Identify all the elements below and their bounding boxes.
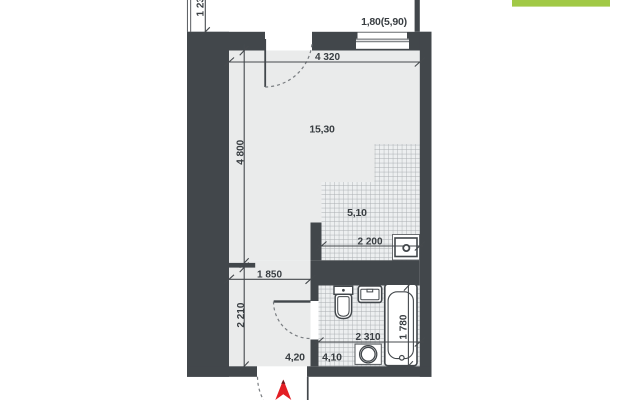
svg-text:4,20: 4,20 — [285, 352, 305, 364]
svg-text:2 200: 2 200 — [357, 237, 382, 248]
svg-text:2 210: 2 210 — [236, 302, 247, 327]
svg-text:1,80(5,90): 1,80(5,90) — [361, 16, 407, 28]
svg-text:1 780: 1 780 — [399, 314, 410, 339]
svg-text:5,10: 5,10 — [347, 207, 367, 219]
svg-text:4 800: 4 800 — [235, 139, 246, 164]
svg-text:4,10: 4,10 — [322, 352, 342, 364]
svg-text:1 235: 1 235 — [195, 0, 206, 17]
svg-text:1 850: 1 850 — [257, 270, 282, 281]
svg-text:2 310: 2 310 — [355, 332, 380, 343]
svg-text:15,30: 15,30 — [309, 124, 335, 136]
svg-text:4 320: 4 320 — [315, 52, 340, 63]
